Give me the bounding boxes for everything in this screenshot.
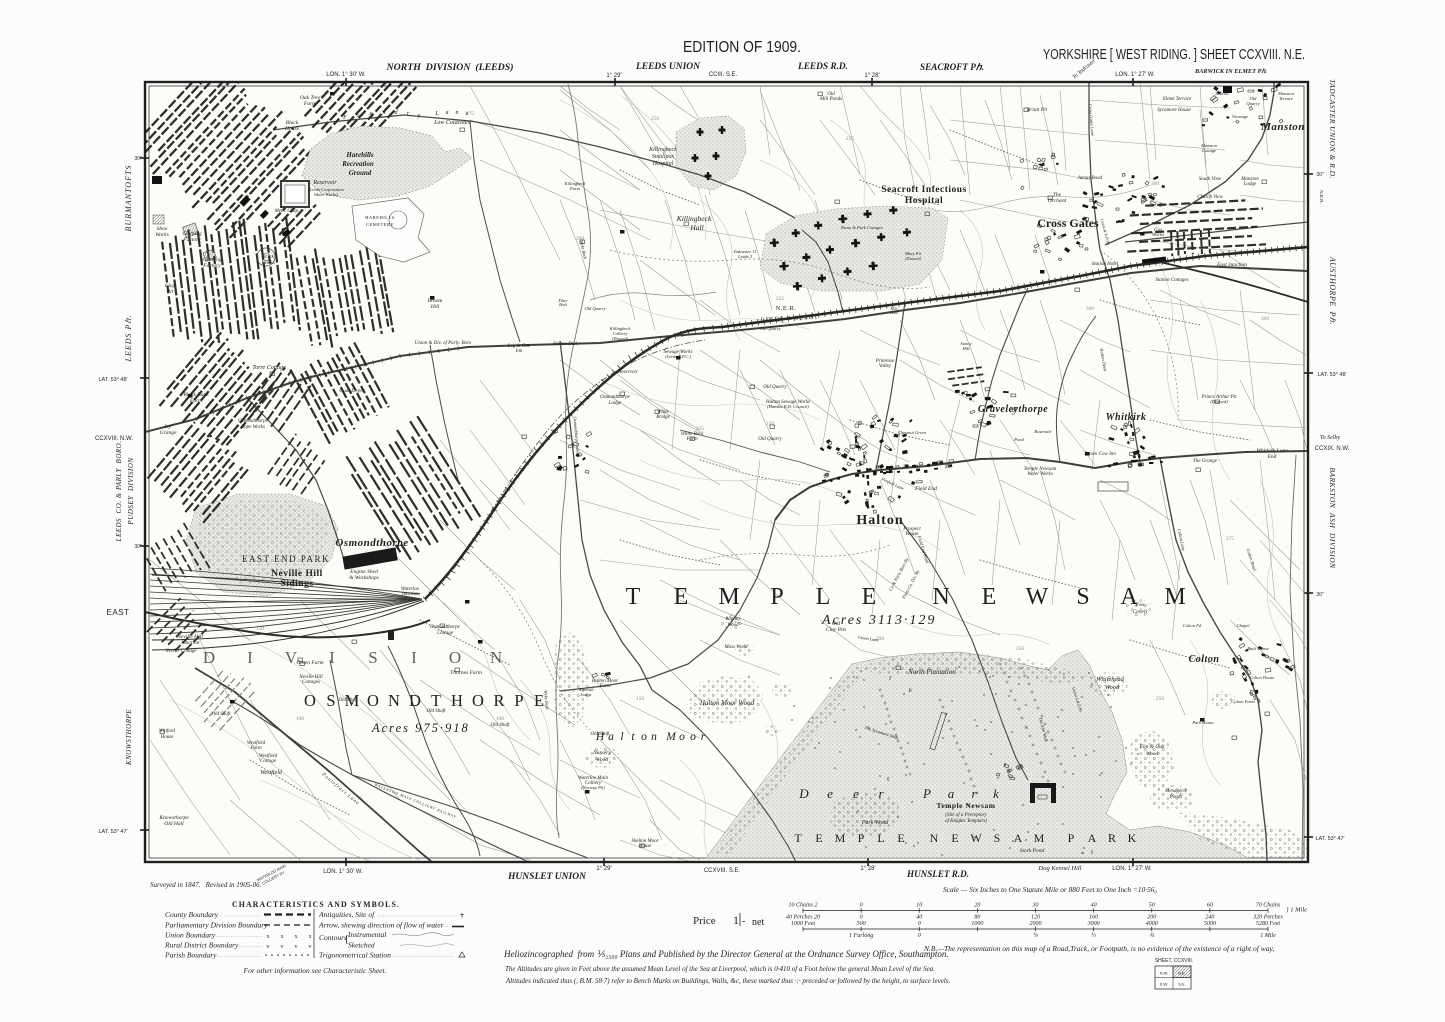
svg-text:M: M: [718, 584, 739, 610]
svg-text:The Grange: The Grange: [1193, 459, 1218, 464]
svg-text:Beds: Beds: [890, 310, 898, 315]
svg-text:Old Hall: Old Hall: [164, 821, 184, 827]
svg-text:(Disused): (Disused): [905, 256, 921, 261]
svg-text:Moss Wood: Moss Wood: [723, 645, 748, 650]
svg-text:Colton: Colton: [1189, 654, 1220, 665]
svg-text:P: P: [922, 786, 931, 801]
svg-text:EDITION OF 1909.: EDITION OF 1909.: [683, 39, 801, 56]
svg-text:E: E: [862, 584, 877, 610]
svg-text:For other information see Char: For other information see Characteristic…: [243, 966, 387, 975]
svg-text:160: 160: [1089, 915, 1098, 921]
svg-text:School: School: [1215, 92, 1229, 97]
svg-text:To Selby: To Selby: [1320, 435, 1341, 441]
svg-text:Cross Gates: Cross Gates: [1037, 216, 1099, 230]
svg-text:Brian Pit: Brian Pit: [1027, 107, 1048, 113]
svg-text:S.W.: S.W.: [1160, 982, 1168, 987]
svg-text:Pond: Pond: [1013, 437, 1024, 442]
svg-text:Osmondthorpe: Osmondthorpe: [430, 625, 461, 630]
svg-text:1: 1: [733, 913, 739, 927]
svg-text:½: ½: [1091, 932, 1096, 939]
svg-text:150: 150: [636, 696, 645, 702]
svg-text:M: M: [1164, 584, 1185, 610]
svg-text:225: 225: [776, 296, 785, 302]
svg-text:(Site of a Preceptory: (Site of a Preceptory: [945, 813, 987, 818]
svg-text:Halton Dial: Halton Dial: [552, 342, 578, 347]
svg-text:North Plantation: North Plantation: [907, 668, 956, 676]
svg-text:(Leeds B.P.C.): (Leeds B.P.C.): [665, 354, 691, 359]
svg-text:0: 0: [918, 921, 921, 927]
svg-text:40: 40: [916, 914, 922, 921]
svg-text:LAT. 53° 48′: LAT. 53° 48′: [98, 377, 127, 383]
svg-text:Old Quarry: Old Quarry: [758, 437, 782, 442]
svg-text:P: P: [514, 691, 523, 710]
svg-text:Rosewale: Rosewale: [1033, 429, 1051, 434]
svg-text:Factory: Factory: [202, 263, 221, 269]
svg-text:Brass & Park Cottages: Brass & Park Cottages: [841, 225, 883, 230]
svg-text:o: o: [690, 731, 696, 743]
svg-text:70 Chains: 70 Chains: [1256, 903, 1281, 909]
svg-text:LEEDS CO. & PARLY BORO.: LEEDS CO. & PARLY BORO.: [115, 441, 123, 543]
svg-text:Neville Hill: Neville Hill: [271, 569, 323, 579]
svg-text:¼: ¼: [1033, 933, 1038, 939]
svg-text:O: O: [367, 691, 379, 710]
svg-text:Church View: Church View: [1197, 195, 1223, 200]
svg-text:200: 200: [1147, 915, 1156, 921]
svg-text:Cottage: Cottage: [260, 759, 277, 764]
svg-text:Valley: Valley: [879, 364, 892, 369]
svg-text:Beds: Beds: [559, 302, 567, 307]
svg-text:1000: 1000: [971, 921, 983, 927]
svg-text:1° 29′: 1° 29′: [606, 73, 622, 79]
svg-text:F: F: [342, 115, 347, 121]
svg-text:Orchard: Orchard: [1048, 198, 1067, 204]
svg-text:Neville Cottage: Neville Cottage: [164, 649, 197, 654]
svg-text:Old Shaft: Old Shaft: [211, 712, 231, 717]
svg-text:Meth. Chap.: Meth. Chap.: [274, 209, 300, 214]
svg-text:(Hunslet R.D. Council): (Hunslet R.D. Council): [767, 404, 809, 409]
svg-text:Ponds: Ponds: [1169, 795, 1183, 800]
svg-text:The Altitudes are given in Fee: The Altitudes are given in Feet above th…: [505, 965, 935, 973]
svg-text:O: O: [304, 691, 316, 710]
svg-text:O: O: [472, 691, 484, 710]
svg-text:O: O: [449, 648, 461, 667]
svg-text:Union & Div. of Parly. Boro: Union & Div. of Parly. Boro: [415, 341, 472, 346]
svg-text:Whitehead: Whitehead: [1096, 676, 1125, 683]
svg-text:10 Chains 2: 10 Chains 2: [788, 903, 817, 909]
svg-text:Hill: Hill: [430, 304, 440, 310]
svg-text:R: R: [1108, 831, 1116, 845]
svg-text:0: 0: [918, 933, 921, 939]
svg-text:Torre Cottage: Torre Cottage: [252, 365, 286, 371]
svg-text:M: M: [1034, 831, 1045, 845]
svg-text:Winford: Winford: [159, 729, 175, 734]
svg-text:Temple Newsam: Temple Newsam: [937, 801, 996, 810]
svg-text:100: 100: [296, 716, 305, 722]
svg-text:Low Coldcotes: Low Coldcotes: [433, 120, 471, 126]
svg-text:Sketched: Sketched: [348, 941, 375, 950]
svg-text:y: y: [417, 113, 421, 119]
svg-text:T: T: [626, 584, 641, 610]
svg-text:BURMANTOFTS: BURMANTOFTS: [124, 165, 133, 232]
svg-text:L: L: [434, 111, 439, 117]
svg-text:x: x: [309, 934, 312, 940]
svg-text:CCXVIII. S.E.: CCXVIII. S.E.: [704, 868, 741, 874]
svg-text:Colton House: Colton House: [1250, 675, 1275, 680]
svg-text:Cottage: Cottage: [1202, 148, 1216, 153]
svg-text:Hospital: Hospital: [652, 161, 674, 167]
svg-text:of Knights Templars): of Knights Templars): [945, 819, 987, 824]
svg-text:I: I: [411, 648, 417, 667]
svg-text:S: S: [368, 648, 377, 667]
svg-text:House: House: [284, 126, 300, 132]
svg-text:E: E: [951, 831, 958, 845]
svg-text:0: 0: [860, 903, 863, 909]
svg-text:H: H: [451, 691, 463, 710]
svg-text:Farm: Farm: [569, 186, 581, 191]
svg-text:S: S: [994, 831, 1001, 845]
svg-text:500: 500: [857, 921, 866, 927]
svg-text:PUDSEY DIVISION: PUDSEY DIVISION: [127, 457, 135, 525]
svg-text:M: M: [835, 831, 846, 845]
svg-text:1 Mile: 1 Mile: [1260, 933, 1276, 939]
svg-text:N: N: [490, 648, 502, 667]
svg-text:Quarry: Quarry: [1246, 101, 1259, 106]
svg-text:N.E.R.: N.E.R.: [1319, 190, 1324, 203]
svg-text:T: T: [431, 691, 441, 710]
svg-text:I: I: [247, 648, 253, 667]
svg-text:Osmondthorpe: Osmondthorpe: [335, 537, 408, 549]
svg-text:5280 Feet: 5280 Feet: [1256, 921, 1280, 927]
svg-text:A: A: [1088, 831, 1097, 845]
svg-text:SHEET. CCXVIII.: SHEET. CCXVIII.: [1155, 958, 1193, 964]
svg-text:NORTH DIVISION (LEEDS): NORTH DIVISION (LEEDS): [385, 62, 513, 73]
svg-text:Wood: Wood: [1105, 684, 1120, 691]
svg-text:Thornes Farm: Thornes Farm: [450, 670, 482, 676]
svg-text:Vicarage: Vicarage: [1232, 114, 1248, 119]
svg-text:30: 30: [1032, 903, 1039, 909]
svg-text:Manston: Manston: [1260, 121, 1305, 133]
svg-text:250: 250: [1016, 646, 1025, 652]
svg-text:Old Quarry: Old Quarry: [759, 326, 780, 331]
svg-text:Farm: Farm: [249, 746, 262, 751]
svg-text:Price: Price: [693, 915, 716, 927]
svg-text:a: a: [446, 110, 449, 116]
svg-text:v: v: [281, 944, 284, 950]
svg-text:Grange: Grange: [160, 430, 177, 436]
svg-text:Works: Works: [155, 232, 169, 238]
svg-text:Old Shaft: Old Shaft: [426, 709, 446, 714]
svg-text:n: n: [651, 731, 657, 743]
svg-text:R: R: [493, 691, 504, 710]
svg-text:P: P: [770, 584, 783, 610]
svg-text:o: o: [357, 113, 360, 119]
svg-text:N.W.: N.W.: [1160, 971, 1169, 976]
svg-text:E: E: [674, 584, 689, 610]
svg-text:✝: ✝: [459, 913, 464, 920]
svg-text:Halton: Halton: [856, 513, 903, 528]
svg-text:House: House: [160, 735, 175, 740]
svg-text:n: n: [456, 110, 459, 116]
svg-text:Sycamore House: Sycamore House: [1157, 108, 1191, 113]
svg-text:LON. 1° 30′ W.: LON. 1° 30′ W.: [326, 72, 366, 78]
svg-text:AUSTHORPE Pℎ.: AUSTHORPE Pℎ.: [1328, 256, 1337, 325]
svg-text:T: T: [794, 831, 802, 845]
svg-text:r: r: [701, 731, 706, 743]
svg-text:Seacroft Infectious: Seacroft Infectious: [881, 185, 967, 195]
svg-text:30″: 30″: [134, 544, 142, 550]
svg-text:Farm: Farm: [685, 437, 698, 442]
svg-text:Heliozincographed from ⅕₂₅₀₀: Heliozincographed from ⅕₂₅₀₀ Plans and P…: [503, 949, 949, 959]
svg-text:LAT. 53° 47′: LAT. 53° 47′: [98, 829, 127, 835]
svg-text:Killingbeck: Killingbeck: [676, 214, 712, 223]
svg-text:Wood: Wood: [727, 623, 739, 628]
svg-text:} 1 Mile: } 1 Mile: [1286, 907, 1307, 914]
svg-text:P: P: [858, 831, 865, 845]
svg-text:Factory: Factory: [182, 237, 201, 243]
svg-text:Old Shaft: Old Shaft: [338, 698, 358, 703]
svg-text:E: E: [897, 831, 904, 845]
svg-text:275: 275: [1226, 536, 1235, 542]
svg-text:LEEDS R.D.: LEEDS R.D.: [797, 61, 848, 71]
svg-text:Rope Works: Rope Works: [240, 425, 265, 430]
svg-text:Cottage: Cottage: [437, 631, 454, 636]
svg-text:120: 120: [1031, 915, 1040, 921]
svg-text:Junction: Junction: [181, 640, 200, 646]
svg-text:Bridge: Bridge: [656, 415, 670, 420]
svg-text:e: e: [827, 786, 833, 801]
svg-text:Terrace: Terrace: [1279, 96, 1293, 101]
svg-text:Menagerie: Menagerie: [1164, 789, 1187, 794]
svg-text:HAREHILLS: HAREHILLS: [365, 215, 395, 220]
svg-text:End: End: [1267, 454, 1277, 460]
svg-text:50: 50: [1149, 903, 1155, 909]
svg-text:1° 29′: 1° 29′: [596, 866, 612, 872]
svg-text:HUNSLET UNION: HUNSLET UNION: [507, 871, 587, 881]
svg-text:Elm & Oak: Elm & Oak: [1138, 744, 1165, 750]
svg-text:Lodge: Lodge: [1243, 182, 1257, 187]
svg-text:1° 28′: 1° 28′: [864, 73, 880, 79]
svg-text:Clay Pits: Clay Pits: [826, 627, 846, 633]
svg-text:40 Perches 20: 40 Perches 20: [786, 914, 820, 921]
svg-text:o: o: [641, 731, 647, 743]
svg-text:Smallpox: Smallpox: [652, 154, 675, 160]
svg-text:Farm: Farm: [303, 101, 316, 107]
svg-text:Water Works: Water Works: [1027, 472, 1052, 477]
svg-text:L: L: [816, 584, 831, 610]
svg-text:E: E: [982, 584, 997, 610]
svg-text:Reservoir: Reservoir: [617, 370, 637, 375]
svg-text:225: 225: [846, 136, 855, 142]
svg-text:Old Shaft: Old Shaft: [590, 732, 610, 737]
svg-text:Farm: Farm: [598, 684, 611, 689]
svg-text:K: K: [1128, 831, 1137, 845]
svg-text:Osmondthorpe: Osmondthorpe: [600, 395, 631, 400]
svg-text:N: N: [932, 584, 949, 610]
svg-text:LEEDS Pℎ.: LEEDS Pℎ.: [124, 315, 133, 363]
svg-text:Hill: Hill: [961, 346, 970, 351]
svg-text:250: 250: [1156, 696, 1165, 702]
svg-text:Westfield: Westfield: [260, 769, 283, 776]
svg-text:Station Cottages: Station Cottages: [1155, 278, 1188, 283]
svg-text:Rural District Boundary: Rural District Boundary: [164, 941, 239, 950]
svg-text:o: o: [679, 731, 685, 743]
svg-text:Union Boundary: Union Boundary: [165, 931, 216, 940]
svg-text:Inn: Inn: [515, 349, 523, 354]
svg-text:5000: 5000: [1204, 921, 1216, 927]
svg-text:Acres 975·918: Acres 975·918: [371, 721, 470, 735]
svg-text:30″: 30″: [1316, 172, 1324, 178]
svg-text:LAT. 53° 48′: LAT. 53° 48′: [1317, 372, 1346, 378]
svg-text:Halton Moor Wood: Halton Moor Wood: [699, 699, 755, 707]
svg-text:Dog Kennel Hill: Dog Kennel Hill: [1038, 865, 1082, 872]
svg-text:CCXIX. N.W.: CCXIX. N.W.: [1315, 446, 1350, 452]
svg-text:S.E.: S.E.: [1178, 982, 1186, 987]
svg-text:Parish Boundary: Parish Boundary: [164, 951, 217, 960]
svg-text:Surveyed in 1847. Revised in: Surveyed in 1847. Revised in 1905-06.: [150, 881, 262, 889]
svg-text:Graveleythorpe: Graveleythorpe: [978, 404, 1048, 415]
svg-text:CEMETERY: CEMETERY: [366, 222, 394, 227]
svg-text:v: v: [295, 944, 298, 950]
svg-text:Station Hotel: Station Hotel: [1092, 262, 1119, 267]
svg-text:Lodge: Lodge: [608, 401, 622, 406]
svg-text:N.E.: N.E.: [1178, 971, 1186, 976]
svg-text:100: 100: [496, 716, 505, 722]
svg-text:HUNSLET R.D.: HUNSLET R.D.: [906, 869, 969, 879]
svg-text:L: L: [877, 831, 884, 845]
svg-text:Colton Farm: Colton Farm: [1231, 699, 1255, 704]
svg-text:2000: 2000: [1030, 921, 1042, 927]
svg-text:e: e: [466, 111, 469, 117]
svg-text:S: S: [326, 691, 335, 710]
svg-text:Old Quarry: Old Quarry: [584, 306, 605, 311]
svg-text:Cottages: Cottages: [302, 680, 320, 685]
svg-text:x: x: [267, 934, 270, 940]
svg-text:N.B.—The representation on thi: N.B.—The representation on this map of a…: [923, 944, 1274, 953]
svg-text:240: 240: [1205, 914, 1214, 921]
svg-text:P: P: [1068, 831, 1075, 845]
svg-text:Park Wood: Park Wood: [861, 820, 890, 826]
svg-text:80: 80: [974, 915, 980, 921]
svg-text:Field End: Field End: [914, 486, 937, 492]
svg-text:Wood: Wood: [596, 757, 609, 763]
svg-text:LEEDS UNION: LEEDS UNION: [635, 61, 701, 71]
svg-text:¾: ¾: [1150, 933, 1155, 939]
svg-text:BARKSTON ASH DIVISION: BARKSTON ASH DIVISION: [1328, 467, 1337, 569]
svg-text:Ground: Ground: [349, 169, 372, 177]
svg-text:60: 60: [1207, 903, 1213, 909]
svg-text:LAT. 53° 47′: LAT. 53° 47′: [1315, 836, 1344, 842]
svg-text:LON. 1° 27′ W.: LON. 1° 27′ W.: [1115, 72, 1155, 78]
svg-text:Lodge: Lodge: [579, 692, 591, 697]
svg-text:Old Shaft: Old Shaft: [490, 723, 510, 728]
svg-text:N.E.R.: N.E.R.: [776, 305, 797, 312]
svg-text:l: l: [620, 731, 623, 743]
svg-text:x: x: [295, 934, 298, 940]
svg-text:Altitudes indicated thus (, B.: Altitudes indicated thus (, B.M. 58·7) r…: [505, 977, 950, 985]
svg-text:Back House: Back House: [1247, 646, 1269, 651]
svg-text:Junction: Junction: [401, 592, 419, 597]
svg-text:e: e: [853, 786, 859, 801]
svg-text:Whitkirk: Whitkirk: [1106, 412, 1147, 423]
svg-text:LON. 1° 30′ W.: LON. 1° 30′ W.: [323, 869, 363, 875]
svg-text:0: 0: [860, 915, 863, 921]
svg-text:W: W: [1026, 584, 1049, 610]
svg-text:I: I: [329, 648, 335, 667]
svg-text:40: 40: [1091, 902, 1097, 909]
svg-text:k: k: [993, 786, 999, 801]
svg-text:D: D: [798, 786, 809, 801]
svg-text:D: D: [203, 648, 215, 667]
svg-text:-: -: [742, 916, 745, 927]
svg-text:LON. 1° 27′ W.: LON. 1° 27′ W.: [1112, 866, 1152, 872]
svg-text:u: u: [370, 111, 373, 117]
svg-text:County Boundary: County Boundary: [165, 910, 219, 919]
svg-text:South View: South View: [1199, 177, 1222, 182]
svg-text:Instrumental: Instrumental: [347, 930, 386, 939]
svg-text:KNOWSTHORPE: KNOWSTHORPE: [125, 709, 133, 766]
svg-text:Sidings: Sidings: [280, 579, 313, 589]
svg-text:Recreation: Recreation: [341, 160, 374, 168]
svg-text:10: 10: [916, 903, 922, 909]
svg-text:BARWICK IN ELMET Pℎ.: BARWICK IN ELMET Pℎ.: [1194, 68, 1268, 75]
svg-text:Fox: Fox: [1135, 602, 1145, 608]
svg-text:Coal Depot: Coal Depot: [339, 388, 365, 394]
svg-text:Antiquities, Site of: Antiquities, Site of: [318, 910, 375, 919]
svg-text:a: a: [948, 786, 955, 801]
svg-text:W: W: [970, 831, 982, 845]
svg-text:Killingbeck: Killingbeck: [648, 147, 677, 153]
svg-text:300: 300: [1151, 181, 1160, 187]
svg-text:S: S: [1076, 584, 1089, 610]
svg-text:Scale — Six Inches to One Stat: Scale — Six Inches to One Statute Mile o…: [943, 885, 1157, 894]
svg-text:Contours: Contours: [319, 933, 347, 942]
svg-text:Green Farm: Green Farm: [296, 660, 323, 666]
svg-text:3000: 3000: [1087, 921, 1100, 927]
svg-text:300: 300: [1261, 316, 1270, 322]
svg-text:30″: 30″: [134, 156, 142, 162]
svg-text:N: N: [388, 691, 400, 710]
svg-text:East Junction: East Junction: [1216, 262, 1247, 268]
svg-text:n: n: [383, 110, 386, 116]
svg-text:Nursery: Nursery: [592, 750, 611, 756]
svg-text:Hospital: Hospital: [905, 196, 943, 206]
svg-text:Water Works): Water Works): [314, 192, 339, 197]
svg-text:TADCASTER UNION & R.D.: TADCASTER UNION & R.D.: [1328, 79, 1337, 179]
svg-text:Harehills: Harehills: [345, 151, 374, 159]
svg-text:v: v: [309, 944, 312, 950]
svg-text:Arrow, shewing direction of fl: Arrow, shewing direction of flow of wate…: [318, 921, 444, 930]
svg-text:net: net: [752, 917, 764, 928]
svg-text:Park House: Park House: [1191, 720, 1213, 725]
svg-text:{: {: [344, 933, 349, 945]
svg-text:Chestnut Green: Chestnut Green: [898, 430, 927, 435]
svg-text:M: M: [665, 731, 677, 743]
svg-text:Works: Works: [261, 260, 275, 266]
svg-text:Pit: Pit: [166, 289, 174, 295]
svg-text:Reservoir: Reservoir: [312, 180, 337, 186]
svg-text:Stork Pond: Stork Pond: [1020, 848, 1045, 854]
svg-text:Old Quarry: Old Quarry: [763, 385, 787, 390]
svg-text:EAST: EAST: [107, 608, 130, 617]
svg-text:Wood: Wood: [1146, 751, 1159, 757]
svg-text:250: 250: [651, 116, 660, 122]
svg-text:SEACROFT Pℎ.: SEACROFT Pℎ.: [920, 62, 984, 72]
svg-text:Mill Ponds: Mill Ponds: [819, 97, 842, 102]
svg-text:YORKSHIRE [ WEST RIDING. ] SHE: YORKSHIRE [ WEST RIDING. ] SHEET CCXVIII…: [1043, 47, 1305, 63]
svg-text:(Norway Pit): (Norway Pit): [581, 785, 605, 790]
svg-text:N: N: [930, 831, 939, 845]
svg-text:Hall: Hall: [689, 223, 703, 232]
